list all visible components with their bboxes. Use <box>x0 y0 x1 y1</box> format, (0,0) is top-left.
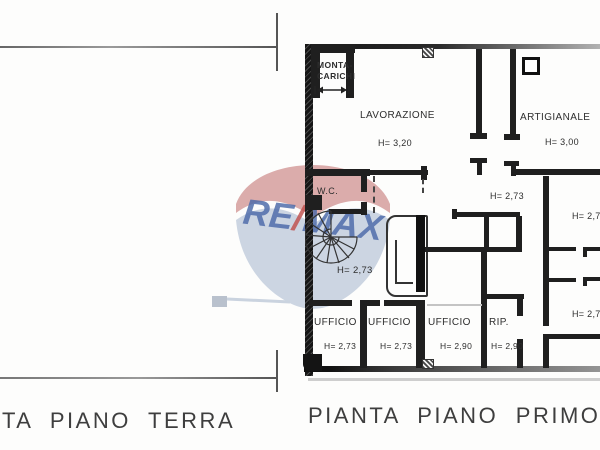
wall-segment <box>425 247 521 252</box>
wall-segment <box>0 377 277 379</box>
dashed-opening <box>422 179 424 193</box>
wall-segment <box>517 294 523 316</box>
door-jamb <box>452 209 457 219</box>
caption-piano-terra: TA PIANO TERRA <box>2 408 235 434</box>
room-label-ufficio-2: UFFICIO <box>368 317 411 328</box>
height-label-ufficio-3: H= 2,90 <box>440 341 472 351</box>
dashed-opening <box>373 176 375 213</box>
wall-segment <box>548 278 576 282</box>
height-label-rip: H= 2,90 <box>491 341 523 351</box>
height-label-upper-right: H= 2,73 <box>490 191 524 201</box>
wall-segment <box>484 216 489 250</box>
montacarichi-line1: MONTA- <box>317 60 355 71</box>
room-label-wc: W.C. <box>317 186 338 196</box>
wall-segment <box>416 300 425 368</box>
wall-segment <box>510 49 516 135</box>
room-label-rip: RIP. <box>489 317 509 328</box>
wall-segment <box>543 339 549 368</box>
height-label-ufficio-1: H= 2,73 <box>324 341 356 351</box>
wall-segment <box>476 49 482 135</box>
montacarichi-line2: CARICHI <box>317 71 355 82</box>
floorplan-sheet: RE/MAX <box>0 0 600 450</box>
wall-segment <box>543 334 600 339</box>
wall-segment <box>548 247 576 251</box>
room-label-lavorazione: LAVORAZIONE <box>360 110 435 121</box>
wc-wall <box>361 175 367 192</box>
door-jamb <box>504 134 520 140</box>
height-label-right-top: H= 2,73 <box>572 211 600 221</box>
wall-segment <box>481 252 487 368</box>
caption-piano-primo: PIANTA PIANO PRIMO <box>308 403 600 429</box>
wall-segment <box>309 300 352 306</box>
door-jamb <box>367 300 380 306</box>
height-label-ufficio-2: H= 2,73 <box>380 341 412 351</box>
height-label-center: H= 2,73 <box>337 265 373 276</box>
stairwell-wall <box>416 215 425 292</box>
corner-block <box>303 354 322 371</box>
height-label-artigianale: H= 3,00 <box>545 137 579 147</box>
hatch-mark <box>422 47 434 58</box>
montacarichi-door-arrow <box>314 84 350 96</box>
wall-block <box>305 195 322 210</box>
door-jamb <box>421 166 427 180</box>
pillar <box>522 57 540 75</box>
height-label-right-bottom: H= 2,73 <box>572 309 600 319</box>
wall-segment <box>543 176 549 326</box>
wall-segment <box>0 46 277 48</box>
wall-segment <box>367 170 428 175</box>
balloon-tether-line <box>227 299 290 302</box>
door-jamb <box>470 133 487 139</box>
stairwell-steps <box>395 240 413 284</box>
hatch-mark <box>422 359 434 369</box>
remax-watermark-balloon: RE/MAX <box>210 136 395 314</box>
balloon-basket <box>212 296 227 307</box>
wall-segment <box>360 300 367 368</box>
wall-segment <box>276 13 278 71</box>
door-jamb <box>583 277 587 286</box>
faint-wall-line <box>427 304 482 306</box>
wall-shadow <box>308 378 600 381</box>
room-label-montacarichi: MONTA- CARICHI <box>317 60 355 82</box>
spiral-staircase <box>305 209 361 265</box>
room-label-ufficio-1: UFFICIO <box>314 317 357 328</box>
height-label-lavorazione: H= 3,20 <box>378 138 412 148</box>
outer-wall-bottom <box>304 366 600 372</box>
room-label-artigianale: ARTIGIANALE <box>520 112 590 123</box>
room-label-ufficio-3: UFFICIO <box>428 317 471 328</box>
wall-segment <box>477 162 482 175</box>
wall-segment <box>513 169 600 175</box>
wall-segment <box>276 350 278 392</box>
door-jamb <box>583 247 587 257</box>
